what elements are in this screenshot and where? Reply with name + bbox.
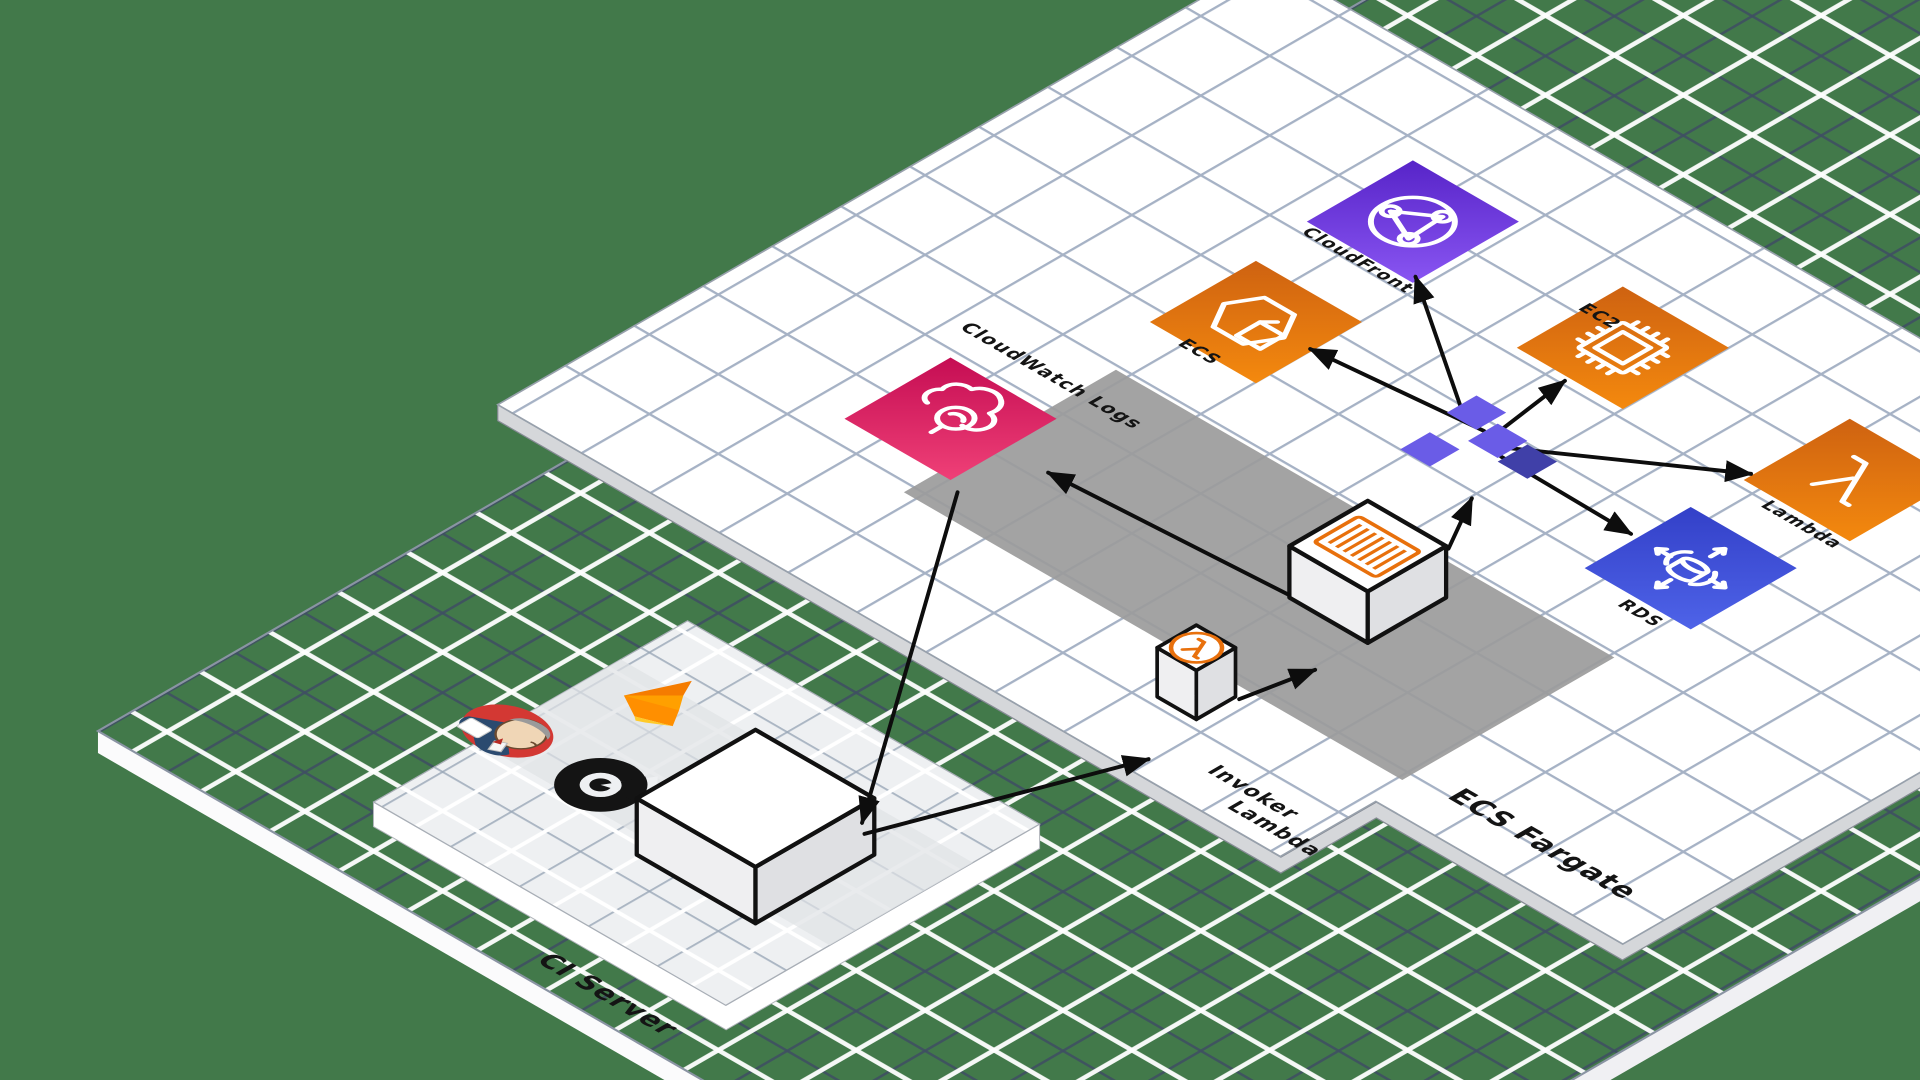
isometric-architecture-diagram: CloudWatch Logs ECS CloudFront EC2 Lambd… — [0, 0, 1920, 1080]
